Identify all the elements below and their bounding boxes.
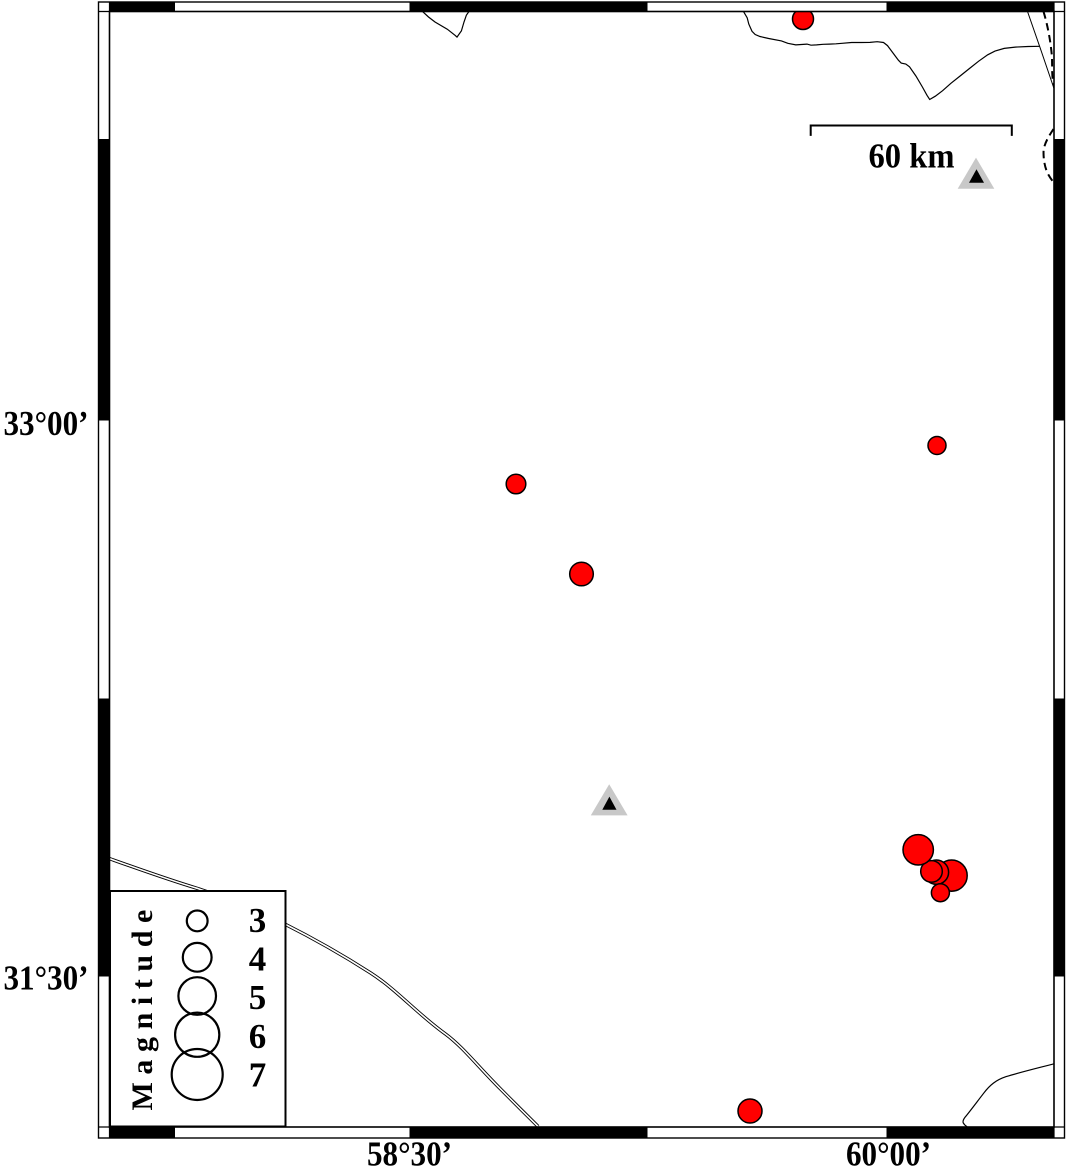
svg-text:6: 6 [249,1017,267,1056]
svg-text:31°30’: 31°30’ [4,959,89,998]
svg-text:7: 7 [249,1055,267,1094]
svg-text:60 km: 60 km [869,137,955,176]
svg-text:60°00’: 60°00’ [846,1135,931,1174]
svg-text:Magnitude: Magnitude [126,902,159,1110]
svg-text:5: 5 [249,978,267,1017]
svg-text:58°30’: 58°30’ [367,1135,452,1174]
svg-text:33°00’: 33°00’ [4,404,89,443]
svg-text:3: 3 [249,901,267,940]
svg-text:4: 4 [249,940,267,979]
